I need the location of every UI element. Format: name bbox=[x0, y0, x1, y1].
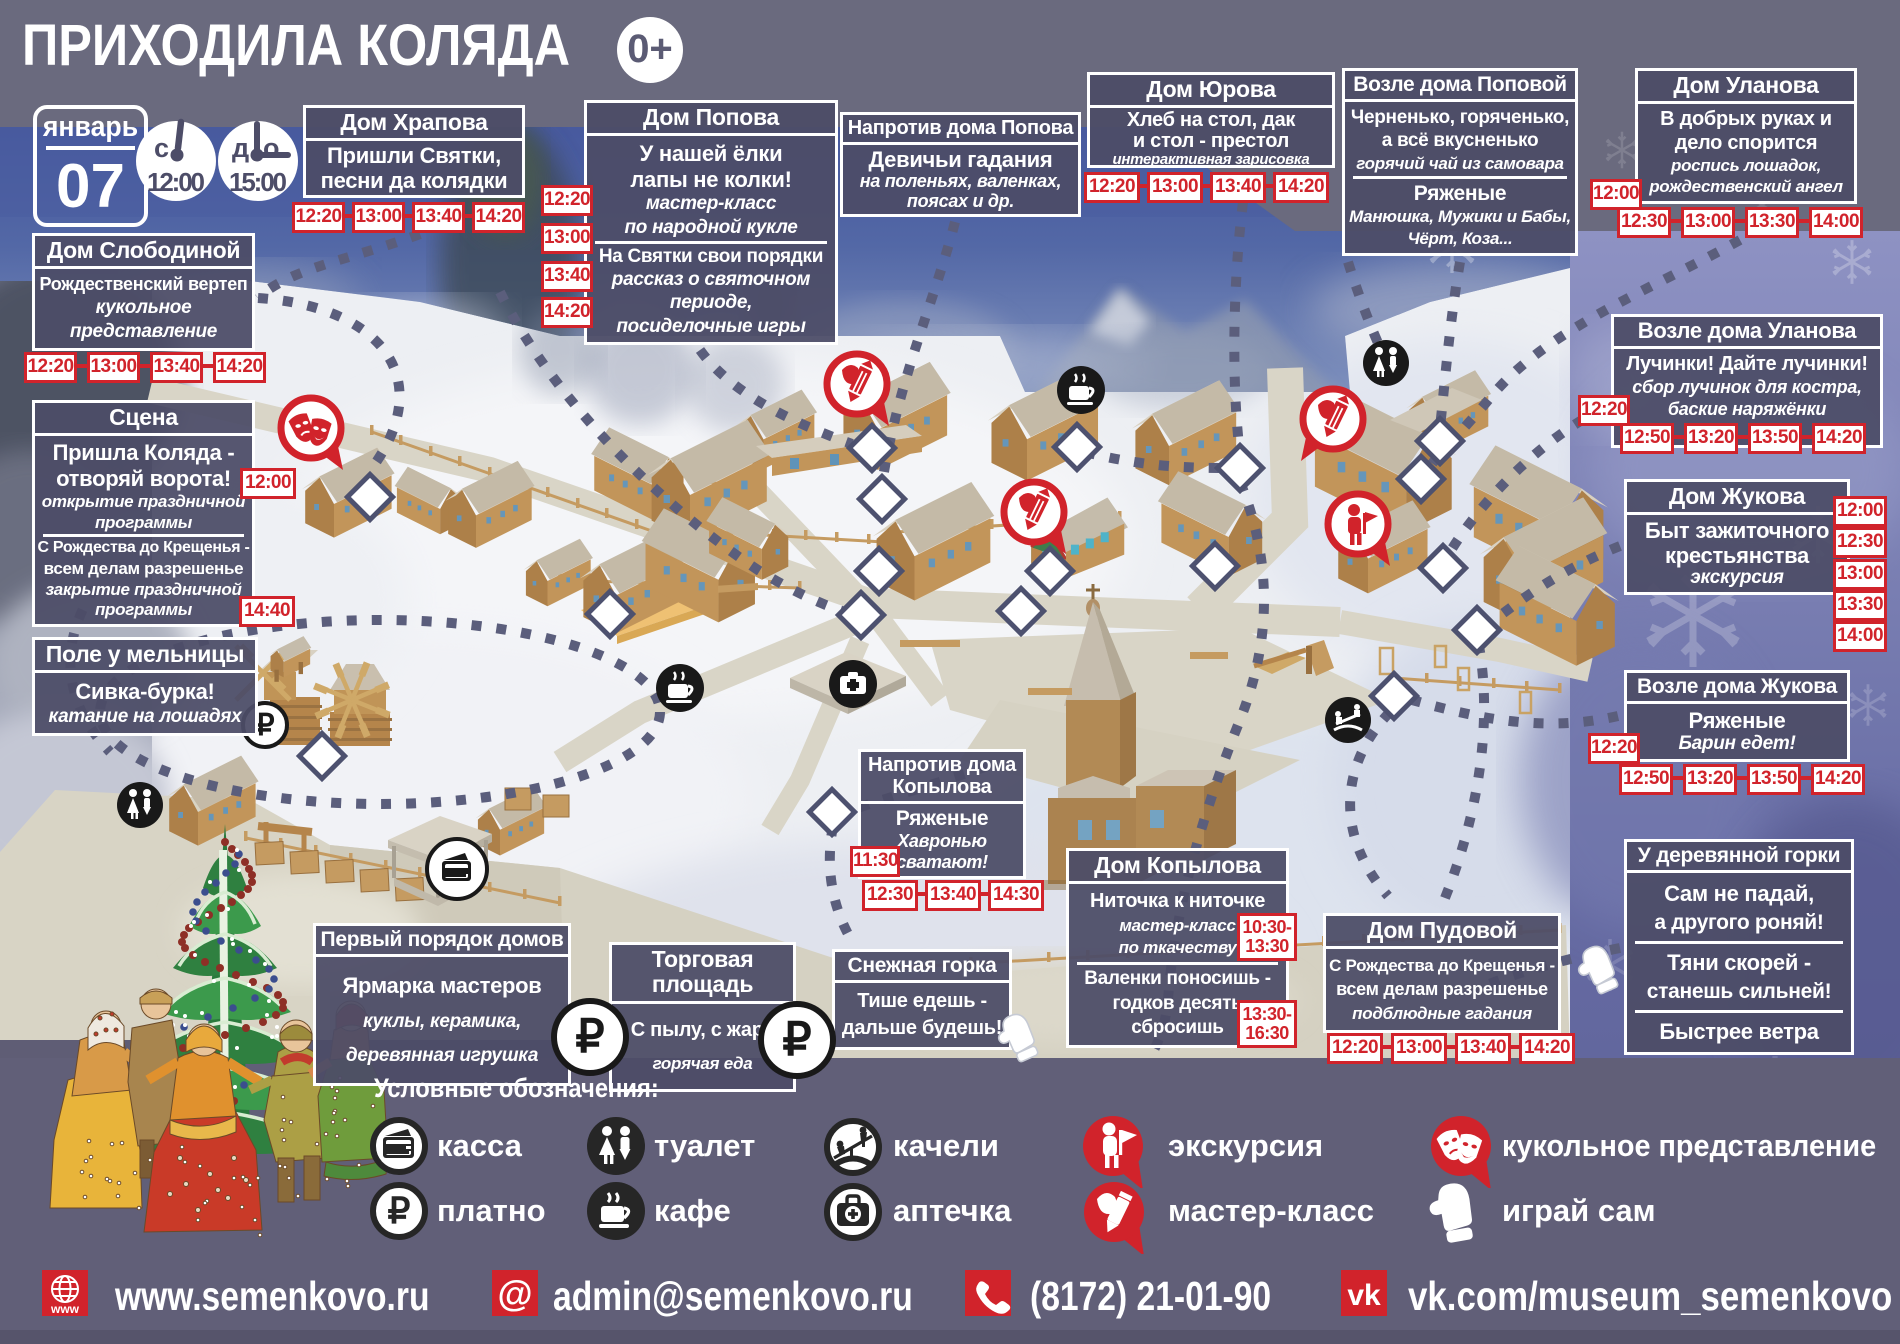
svg-text:₽: ₽ bbox=[388, 1190, 411, 1231]
svg-text:о: о bbox=[263, 133, 280, 163]
svg-text:12:00: 12:00 bbox=[147, 167, 205, 197]
svg-text:д: д bbox=[232, 133, 249, 163]
svg-text:www: www bbox=[50, 1302, 80, 1316]
svg-text:с: с bbox=[154, 133, 169, 163]
svg-text:₽: ₽ bbox=[782, 1013, 811, 1065]
svg-text:vk: vk bbox=[1347, 1279, 1381, 1312]
svg-text:@: @ bbox=[497, 1273, 532, 1314]
svg-text:15:00: 15:00 bbox=[229, 167, 287, 197]
svg-text:₽: ₽ bbox=[575, 1010, 604, 1062]
